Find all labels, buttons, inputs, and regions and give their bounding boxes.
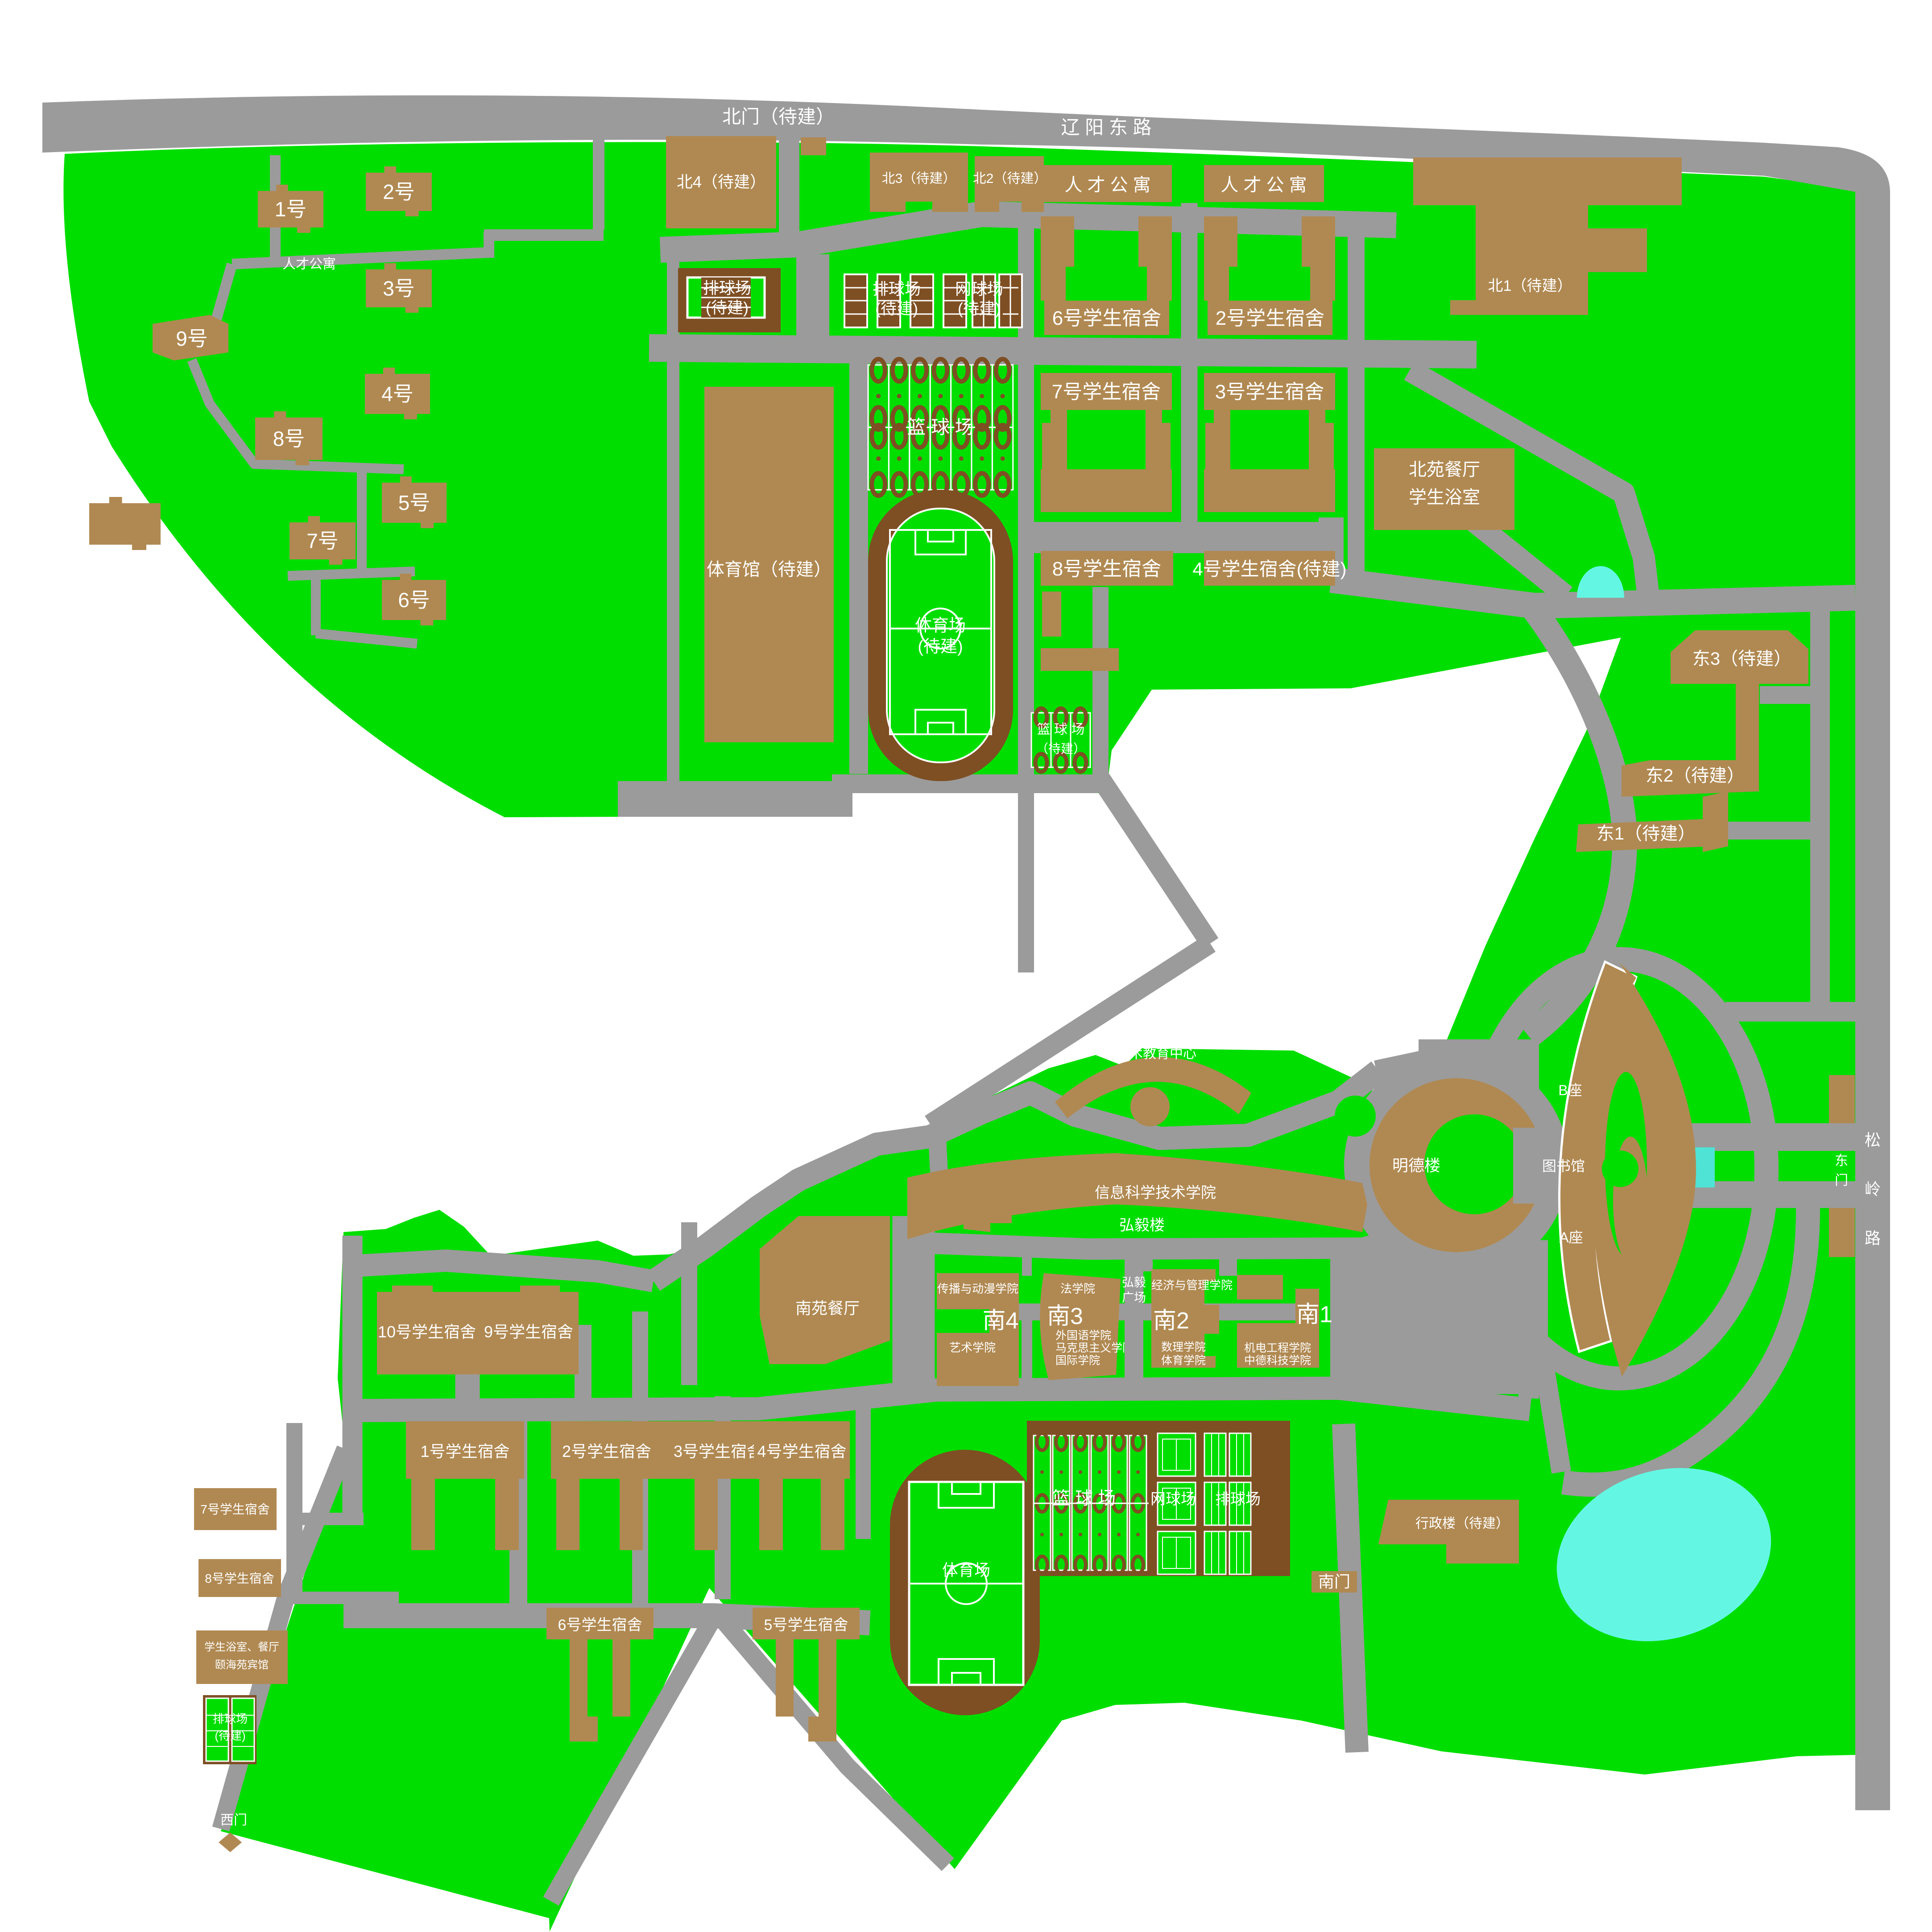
svg-text:排球场: 排球场 <box>873 280 921 298</box>
svg-text:7号学生宿舍: 7号学生宿舍 <box>1052 381 1161 403</box>
svg-text:3号学生宿舍: 3号学生宿舍 <box>674 1442 763 1460</box>
svg-text:南1: 南1 <box>1296 1302 1332 1328</box>
svg-text:艺术教育中心: 艺术教育中心 <box>1116 1047 1196 1061</box>
svg-text:9号学生宿舍: 9号学生宿舍 <box>484 1323 573 1341</box>
svg-text:网球场: 网球场 <box>955 280 1003 298</box>
svg-text:广场: 广场 <box>1122 1291 1146 1304</box>
svg-text:南3: 南3 <box>1047 1303 1083 1329</box>
svg-text:2号学生宿舍: 2号学生宿舍 <box>1216 307 1324 329</box>
svg-text:排球场: 排球场 <box>213 1712 248 1725</box>
svg-text:颐海苑宾馆: 颐海苑宾馆 <box>215 1659 269 1671</box>
svg-text:排球场: 排球场 <box>703 279 751 297</box>
svg-text:7号: 7号 <box>306 530 339 553</box>
svg-text:8号: 8号 <box>273 427 305 451</box>
svg-text:信息科学技术学院: 信息科学技术学院 <box>1095 1184 1216 1201</box>
svg-text:(待建): (待建) <box>918 637 963 656</box>
svg-text:弘毅楼: 弘毅楼 <box>1119 1217 1165 1234</box>
svg-text:篮 球 场: 篮 球 场 <box>1052 1489 1116 1508</box>
svg-text:东3（待建）: 东3（待建） <box>1692 649 1791 669</box>
svg-text:东2（待建）: 东2（待建） <box>1646 766 1745 786</box>
svg-text:北1（待建）: 北1（待建） <box>1488 277 1572 294</box>
svg-text:6号: 6号 <box>398 588 430 612</box>
svg-text:体育馆（待建）: 体育馆（待建） <box>707 560 832 579</box>
svg-text:行政楼（待建）: 行政楼（待建） <box>1415 1516 1509 1531</box>
svg-text:5号: 5号 <box>398 491 430 514</box>
svg-text:外国语学院: 外国语学院 <box>1055 1329 1111 1342</box>
svg-text:经济与管理学院: 经济与管理学院 <box>1151 1278 1233 1292</box>
svg-text:明德楼: 明德楼 <box>1392 1156 1440 1175</box>
svg-text:中德科技学院: 中德科技学院 <box>1244 1354 1311 1367</box>
svg-text:国际学院: 国际学院 <box>1055 1354 1100 1367</box>
svg-text:北门（待建）: 北门（待建） <box>722 106 835 127</box>
svg-text:人 才 公 寓: 人 才 公 寓 <box>1220 175 1307 195</box>
svg-text:路: 路 <box>1865 1229 1881 1247</box>
svg-text:法学院: 法学院 <box>1060 1282 1095 1295</box>
svg-text:艺术学院: 艺术学院 <box>949 1341 996 1354</box>
svg-text:4号学生宿舍(待建): 4号学生宿舍(待建) <box>1192 559 1346 579</box>
svg-text:松: 松 <box>1865 1131 1881 1149</box>
svg-text:西门: 西门 <box>220 1813 247 1828</box>
svg-text:5号学生宿舍: 5号学生宿舍 <box>764 1617 848 1634</box>
svg-text:弘毅: 弘毅 <box>1122 1276 1146 1289</box>
svg-text:北苑餐厅: 北苑餐厅 <box>1409 460 1480 480</box>
svg-text:学生浴室、餐厅: 学生浴室、餐厅 <box>204 1641 279 1653</box>
svg-text:3号学生宿舍: 3号学生宿舍 <box>1215 381 1324 403</box>
svg-text:3号: 3号 <box>383 277 415 300</box>
svg-text:南4: 南4 <box>983 1308 1019 1334</box>
svg-text:8号学生宿舍: 8号学生宿舍 <box>1052 558 1161 580</box>
svg-text:机电工程学院: 机电工程学院 <box>1244 1342 1311 1354</box>
svg-text:人 才 公 寓: 人 才 公 寓 <box>1064 175 1150 195</box>
svg-text:A座: A座 <box>1559 1229 1583 1245</box>
svg-text:数理学院: 数理学院 <box>1161 1341 1206 1353</box>
svg-text:1号: 1号 <box>275 198 307 221</box>
svg-text:10号学生宿舍: 10号学生宿舍 <box>378 1323 476 1341</box>
svg-text:体育场: 体育场 <box>942 1561 990 1579</box>
svg-text:6号学生宿舍: 6号学生宿舍 <box>558 1617 642 1634</box>
svg-text:传播与动漫学院: 传播与动漫学院 <box>937 1282 1018 1295</box>
svg-text:(待建): (待建) <box>958 299 1001 318</box>
svg-text:9号: 9号 <box>176 327 208 350</box>
svg-text:1号学生宿舍: 1号学生宿舍 <box>420 1442 509 1460</box>
svg-text:7号学生宿舍: 7号学生宿舍 <box>200 1502 270 1516</box>
svg-text:4号: 4号 <box>381 382 414 405</box>
svg-text:体育场: 体育场 <box>915 616 966 635</box>
svg-text:北3（待建）: 北3（待建） <box>882 171 956 186</box>
svg-text:辽 阳 东 路: 辽 阳 东 路 <box>1061 117 1151 138</box>
svg-text:（待建）: （待建） <box>1036 742 1086 756</box>
svg-text:图书馆: 图书馆 <box>1542 1158 1585 1174</box>
svg-text:篮 球 场: 篮 球 场 <box>907 417 973 438</box>
svg-text:6号学生宿舍: 6号学生宿舍 <box>1052 307 1161 329</box>
svg-text:南门: 南门 <box>1318 1572 1350 1591</box>
svg-text:2号学生宿舍: 2号学生宿舍 <box>562 1442 651 1460</box>
svg-text:南苑餐厅: 南苑餐厅 <box>795 1299 860 1317</box>
svg-text:B座: B座 <box>1558 1082 1582 1098</box>
svg-text:(待建): (待建) <box>875 299 918 318</box>
svg-text:岭: 岭 <box>1865 1180 1881 1198</box>
svg-text:门: 门 <box>1835 1173 1848 1188</box>
svg-text:排球场: 排球场 <box>1215 1491 1261 1508</box>
svg-text:网球场: 网球场 <box>1150 1491 1196 1508</box>
svg-text:学生浴室: 学生浴室 <box>1409 488 1480 507</box>
svg-text:体育学院: 体育学院 <box>1161 1354 1206 1367</box>
svg-text:2号: 2号 <box>383 180 415 203</box>
svg-text:马克思主义学院: 马克思主义学院 <box>1055 1342 1134 1354</box>
svg-text:4号学生宿舍: 4号学生宿舍 <box>757 1442 846 1460</box>
svg-text:人才公寓: 人才公寓 <box>282 257 336 272</box>
svg-text:(待建): (待建) <box>706 298 749 317</box>
svg-text:东1（待建）: 东1（待建） <box>1597 824 1696 844</box>
svg-text:东: 东 <box>1835 1154 1848 1168</box>
svg-text:南2: 南2 <box>1153 1308 1189 1334</box>
svg-text:篮 球 场: 篮 球 场 <box>1037 722 1085 737</box>
svg-text:(待建): (待建) <box>215 1729 245 1742</box>
svg-text:北4（待建）: 北4（待建） <box>677 173 766 191</box>
svg-text:8号学生宿舍: 8号学生宿舍 <box>205 1572 274 1585</box>
svg-text:北2（待建）: 北2（待建） <box>973 171 1047 186</box>
